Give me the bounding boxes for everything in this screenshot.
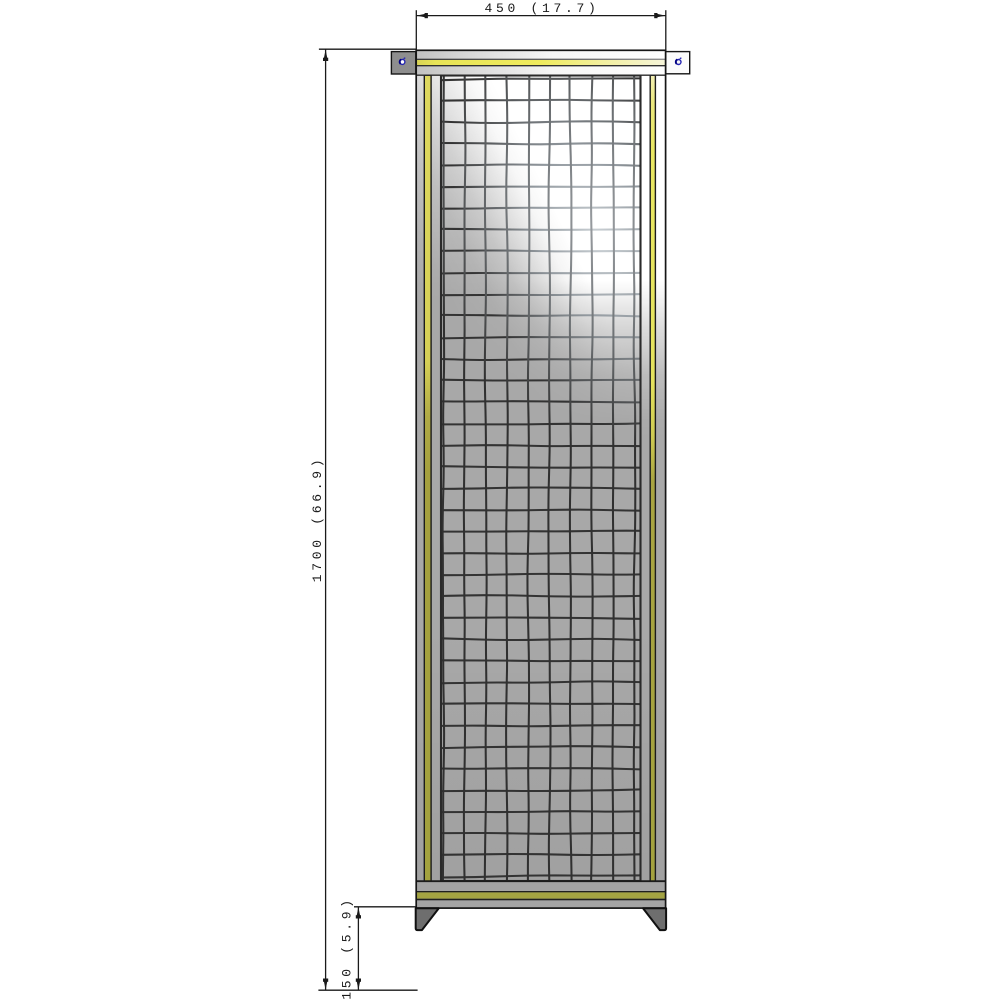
svg-text:450 (17.7): 450 (17.7): [484, 1, 599, 16]
svg-text:1700 (66.9): 1700 (66.9): [310, 456, 325, 583]
svg-text:150 (5.9): 150 (5.9): [340, 896, 355, 1000]
